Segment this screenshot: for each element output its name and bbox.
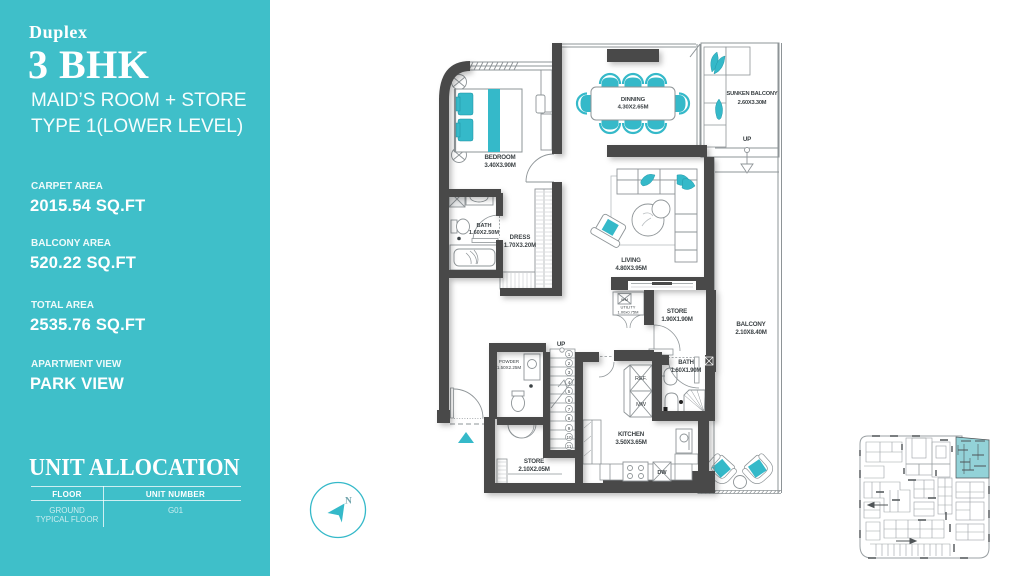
svg-text:WM: WM: [621, 297, 628, 302]
svg-text:KITCHEN: KITCHEN: [618, 431, 645, 438]
svg-text:BATH: BATH: [476, 223, 491, 229]
svg-text:POWDER: POWDER: [499, 359, 520, 364]
svg-text:6: 6: [568, 398, 571, 403]
svg-text:UP: UP: [743, 136, 751, 143]
svg-text:1: 1: [568, 352, 571, 357]
svg-text:3.50X3.65M: 3.50X3.65M: [615, 439, 646, 446]
svg-text:5: 5: [568, 389, 571, 394]
svg-text:DINNING: DINNING: [621, 97, 646, 103]
svg-text:1.50X2.25M: 1.50X2.25M: [497, 365, 522, 370]
svg-text:1.60X2.50M: 1.60X2.50M: [469, 230, 500, 236]
svg-text:3.40X3.90M: 3.40X3.90M: [484, 162, 515, 169]
svg-text:4.30X2.65M: 4.30X2.65M: [618, 105, 649, 111]
svg-text:STORE: STORE: [667, 308, 687, 315]
svg-text:1.70X3.20M: 1.70X3.20M: [504, 243, 536, 249]
svg-text:STORE: STORE: [524, 458, 544, 465]
svg-text:10: 10: [566, 435, 572, 440]
svg-text:2.60X3.30M: 2.60X3.30M: [738, 100, 767, 106]
svg-text:MW: MW: [636, 402, 647, 408]
svg-text:BALCONY: BALCONY: [736, 321, 766, 328]
svg-text:UP: UP: [557, 341, 565, 348]
svg-text:8: 8: [568, 416, 571, 421]
svg-text:DRESS: DRESS: [510, 235, 531, 241]
svg-text:1.90X1.90M: 1.90X1.90M: [661, 316, 692, 323]
svg-text:1.60X1.90M: 1.60X1.90M: [671, 368, 702, 374]
svg-text:9: 9: [568, 426, 571, 431]
svg-text:SUNKEN BALCONY: SUNKEN BALCONY: [727, 91, 778, 97]
svg-text:7: 7: [568, 407, 571, 412]
svg-text:11: 11: [567, 444, 572, 449]
svg-text:2.10X8.40M: 2.10X8.40M: [735, 329, 766, 336]
svg-text:REF.: REF.: [635, 376, 647, 382]
svg-text:BEDROOM: BEDROOM: [485, 154, 516, 161]
svg-text:2.10X2.05M: 2.10X2.05M: [518, 466, 549, 473]
svg-text:4.80X3.95M: 4.80X3.95M: [615, 265, 646, 272]
svg-text:DW: DW: [657, 470, 667, 476]
svg-text:LIVING: LIVING: [621, 257, 641, 264]
svg-text:BATH: BATH: [678, 360, 693, 366]
svg-text:N: N: [345, 497, 352, 507]
svg-text:1.00x0.75M: 1.00x0.75M: [618, 310, 639, 315]
svg-text:2: 2: [568, 361, 571, 366]
svg-text:3: 3: [568, 370, 571, 375]
